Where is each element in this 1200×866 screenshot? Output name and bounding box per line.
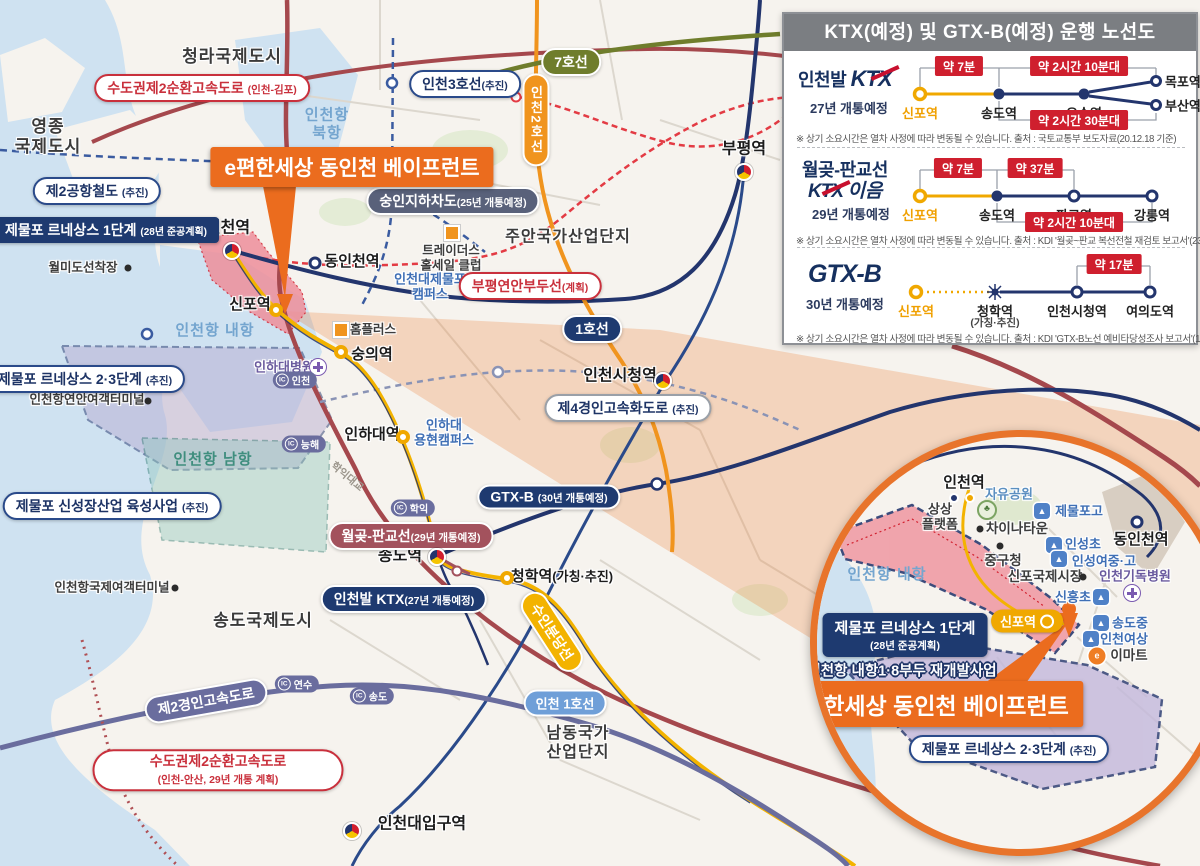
line-badge-bupyeong-pier: 부평연안부두선(계획) xyxy=(459,272,602,300)
inset-badge-jemulpo1: 제물포 르네상스 1단계(28년 준공계획) xyxy=(823,613,988,657)
panel-separator xyxy=(797,147,1185,148)
station-dot-sungui xyxy=(334,345,348,359)
inset-poi-christian-hospital: 인천기독병원 xyxy=(1099,568,1171,583)
diagram-station: 여의도역 xyxy=(1126,301,1174,320)
station-dot-sinpo xyxy=(269,303,283,317)
duration-badge: 약 7분 xyxy=(934,158,982,178)
line-badge-incheon3: 인천3호선(추진) xyxy=(409,70,521,98)
project-badge-jemulpo23: 제물포 르네상스 2·3단계 (추진) xyxy=(0,365,185,393)
station-label-cityhall: 인천시청역 xyxy=(583,368,657,387)
road-badge-gyeongin4: 제4경인고속화도로 (추진) xyxy=(544,394,711,422)
water-label-namhang: 인천항 남항 xyxy=(173,451,252,469)
line-badge-airport2: 제2공항철도 (추진) xyxy=(33,177,161,205)
poi-dot xyxy=(977,526,984,533)
route-panel: KTX(예정) 및 GTX-B(예정) 운행 노선도 xyxy=(782,12,1198,345)
hospital-cross-icon xyxy=(1123,584,1141,602)
line-badge-incheon-line1: 인천 1호선 xyxy=(524,690,607,717)
ic-badge-incheon: IC인천 xyxy=(273,372,317,389)
inset-poi-jemulpogo: 제물포고 xyxy=(1055,503,1103,518)
poi-dot xyxy=(997,543,1004,550)
duration-badge: 약 17분 xyxy=(1087,254,1142,274)
inset-poi-emart: 이마트 xyxy=(1110,648,1147,664)
diagram-station: 신포역 xyxy=(902,103,938,122)
ic-badge-yeonsu: IC연수 xyxy=(275,676,319,693)
city-label-cheongna: 청라국제도시 xyxy=(182,47,282,67)
poi-label-traders: 트레이더스 홀세일 클럽 xyxy=(421,243,482,273)
inset-sinpo-badge: 신포역 xyxy=(991,610,1063,633)
map-stage: 청라국제도시 수도권제2순환고속도로 (인천-김포) 영종 국제도시 인천3호선… xyxy=(0,0,1200,866)
duration-badge: 약 2시간 10분대 xyxy=(1030,56,1128,76)
inset-poi-jayu: 자유공원 xyxy=(985,486,1033,501)
inset-poi-sangsang: 상상 플랫폼 xyxy=(922,502,958,533)
station-label-sinpo: 신포역 xyxy=(229,296,270,314)
line-badge-incheon2: 인천2호선 xyxy=(523,73,550,166)
poi-label-yeonan-terminal: 인천항연안여객터미널 xyxy=(29,393,144,408)
road-badge-sudogwon-ansan: 수도권제2순환고속도로(인천-안산, 29년 개통 계획) xyxy=(93,749,344,791)
station-dot-bupyeong xyxy=(735,163,753,181)
city-label-songdo: 송도국제도시 xyxy=(213,611,313,631)
project-badge-jemulpo1: 제물포 르네상스 1단계 (28년 준공계획) xyxy=(0,217,219,243)
footnote-3: ※ 상기 소요시간은 열차 사정에 따라 변동될 수 있습니다. 출처 : KD… xyxy=(796,331,1200,345)
diagram-station: 인천시청역 xyxy=(1047,301,1107,320)
inset-dot-navy xyxy=(949,493,959,503)
poi-label-intl-terminal: 인천항국제여객터미널 xyxy=(54,581,169,596)
gtxb-logo: GTX-B xyxy=(808,260,881,289)
inset-pier18-label: 인천항 내항1·8부두 재개발사업 xyxy=(810,660,997,681)
station-dot-incheon xyxy=(223,242,241,260)
inset-poi-songdojung: 송도중 xyxy=(1112,615,1148,630)
inset-poi-junggu: 중구청 xyxy=(984,553,1021,569)
school-icon: ▲ xyxy=(1034,503,1050,519)
inset-poi-chinatown: 차이나타운 xyxy=(986,521,1048,537)
station-label-dongincheon: 동인천역 xyxy=(324,253,379,271)
line-badge-wolpan: 월곶-판교선(29년 개통예정) xyxy=(329,522,494,550)
diagram-station: 부산역 xyxy=(1165,96,1200,115)
project-badge-epyeonhan: e편한세상 동인천 베이프런트 xyxy=(210,147,493,187)
inset-poi-insungcho: 인성초 xyxy=(1065,536,1101,551)
station-label-cheonghak: 청학역(가칭·추진) xyxy=(511,568,613,586)
emart-icon: e xyxy=(1089,648,1106,665)
road-badge-sungin: 숭인지하차도(25년 개통예정) xyxy=(366,187,539,215)
district-label-namdong: 남동국가 산업단지 xyxy=(547,725,610,763)
diagram-station: 신포역 xyxy=(898,301,934,320)
school-icon: ▲ xyxy=(1093,589,1109,605)
diagram-station: 강릉역 xyxy=(1134,205,1170,224)
poi-dot xyxy=(145,398,152,405)
line-badge-line7: 7호선 xyxy=(541,48,601,76)
poi-dot xyxy=(1080,574,1087,581)
poi-label-inha-campus: 인하대 용현캠퍼스 xyxy=(414,418,474,449)
station-dot-dongincheon xyxy=(309,257,322,270)
poi-label-inu-campus: 인천대제물포 캠퍼스 xyxy=(394,272,466,303)
inset-water-naehang: 인천항 내항 xyxy=(847,566,926,584)
city-label-yeongjong: 영종 국제도시 xyxy=(15,117,82,157)
footnote-1: ※ 상기 소요시간은 열차 사정에 따라 변동될 수 있습니다. 출처 : 국토… xyxy=(796,131,1176,145)
duration-badge: 약 2시간 30분대 xyxy=(1030,110,1128,130)
station-dot-inu xyxy=(343,822,361,840)
station-dot-inha xyxy=(396,430,410,444)
district-label-juan: 주안국가산업단지 xyxy=(505,229,631,248)
ktx-incheon-logo: 인천발 KTX xyxy=(798,66,892,92)
open-year-3: 30년 개통예정 xyxy=(806,294,884,313)
line-badge-gtxb: GTX-B (30년 개통예정) xyxy=(477,485,620,510)
diagram-station: 송도역 xyxy=(979,205,1015,224)
station-dot-cityhall xyxy=(654,372,672,390)
ic-badge-songdo: IC송도 xyxy=(350,688,394,705)
station-label-songdo: 송도역 xyxy=(378,548,422,567)
school-icon: ▲ xyxy=(1083,631,1099,647)
detail-inset-circle: 인천역 상상 플랫폼 자유공원 ♣ ▲ 제물포고 차이나타운 ▲ 인성초 중구청… xyxy=(810,430,1200,856)
inset-dot-gold xyxy=(965,493,975,503)
duration-badge: 약 37분 xyxy=(1008,158,1063,178)
line-badge-ktx: 인천발 KTX(27년 개통예정) xyxy=(321,585,487,613)
inset-badge-epyeonhan: e편한세상 동인천 베이프런트 xyxy=(810,681,1083,727)
poi-label-homeplus: 홈플러스 xyxy=(350,323,396,338)
traders-icon xyxy=(444,225,460,241)
inset-dot-dongincheon xyxy=(1131,516,1144,529)
park xyxy=(319,198,371,226)
duration-badge: 약 2시간 10분대 xyxy=(1025,212,1123,232)
station-dot-cheonghak xyxy=(500,571,514,585)
inset-station-dongincheon: 동인천역 xyxy=(1113,531,1168,549)
park-tree-icon: ♣ xyxy=(977,500,997,520)
diagram-station-note: (가칭·추진) xyxy=(970,315,1019,330)
diagram-station: 신포역 xyxy=(902,205,938,224)
road-badge-sudogwon-gimpo: 수도권제2순환고속도로 (인천-김포) xyxy=(94,74,310,102)
station-label-inu: 인천대입구역 xyxy=(378,816,466,835)
inset-poi-sinpo-market: 신포국제시장 xyxy=(1008,569,1083,585)
poi-dot xyxy=(125,265,132,272)
inset-poi-sinheungcho: 신흥초 xyxy=(1055,589,1091,604)
station-label-inha: 인하대역 xyxy=(344,426,399,444)
inset-station-incheon: 인천역 xyxy=(943,474,984,492)
ic-badge-neunghae: IC능해 xyxy=(282,436,326,453)
wolpan-logo-line2: KTX 이음 xyxy=(808,176,882,203)
diagram-station: 목포역 xyxy=(1165,72,1200,91)
panel-separator xyxy=(797,247,1185,248)
project-badge-sinseongjang: 제물포 신성장산업 육성사업 (추진) xyxy=(3,492,222,520)
station-label-bupyeong: 부평역 xyxy=(722,141,766,160)
open-year-2: 29년 개통예정 xyxy=(812,204,890,223)
station-dot-songdo xyxy=(428,548,446,566)
ic-badge-hakik: IC학익 xyxy=(391,500,435,517)
inset-poi-insungyeo: 인성여중·고 xyxy=(1072,553,1136,568)
duration-badge: 약 7분 xyxy=(935,56,983,76)
footnote-2: ※ 상기 소요시간은 열차 사정에 따라 변동될 수 있습니다. 출처 : KD… xyxy=(796,233,1200,247)
school-icon: ▲ xyxy=(1093,615,1109,631)
poi-dot xyxy=(172,585,179,592)
school-icon: ▲ xyxy=(1051,551,1067,567)
water-label-naehang: 인천항 내항 xyxy=(175,322,254,340)
inset-badge-jemulpo23: 제물포 르네상스 2·3단계 (추진) xyxy=(909,735,1109,763)
open-year-1: 27년 개통예정 xyxy=(810,98,888,117)
poi-label-wolmido: 월미도선착장 xyxy=(48,261,117,276)
diagram-station: 송도역 xyxy=(981,103,1017,122)
station-label-sungui: 숭의역 xyxy=(351,346,392,364)
water-label-bukhang: 인천항 북항 xyxy=(305,106,349,141)
line-badge-line1: 1호선 xyxy=(562,315,622,343)
homeplus-icon xyxy=(333,322,349,338)
inset-poi-yeosang: 인천여상 xyxy=(1100,631,1148,646)
